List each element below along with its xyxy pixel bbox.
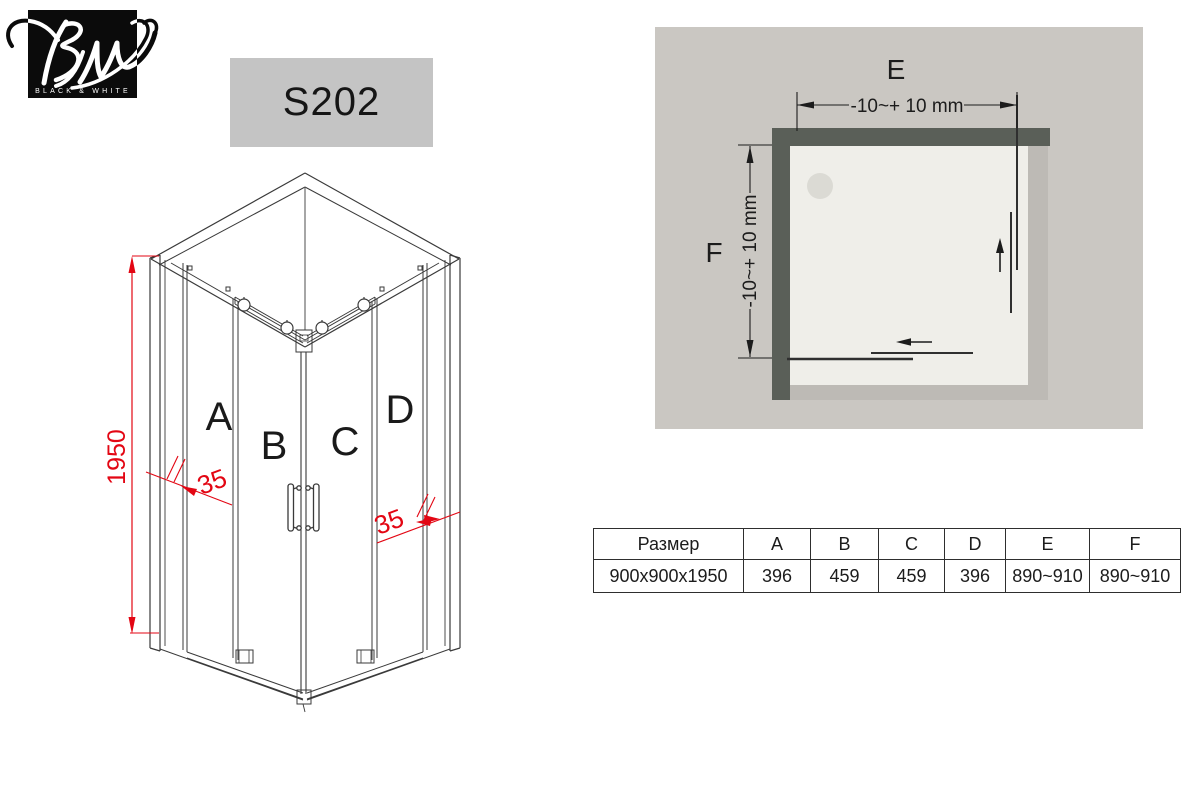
- wall-profile-right: [423, 255, 460, 652]
- roller-wheels: [238, 297, 370, 334]
- panel-label-c: C: [331, 420, 360, 464]
- brand-logo: BLACK & WHITE: [8, 10, 157, 98]
- top-frame: [151, 173, 459, 347]
- drain-icon: [807, 173, 833, 199]
- value-d: 396: [945, 560, 1006, 593]
- value-a: 396: [744, 560, 811, 593]
- corner-post: [296, 330, 312, 694]
- wall-profile-left: [150, 255, 187, 652]
- header-c: C: [879, 529, 945, 560]
- height-dim-text: 1950: [103, 429, 131, 485]
- iso-enclosure-drawing: [150, 173, 460, 712]
- panel-label-a: A: [206, 395, 233, 439]
- header-f: F: [1090, 529, 1181, 560]
- e-tolerance-text: -10~+ 10 mm: [851, 96, 964, 117]
- size-table-header-row: Размер A B C D E F: [594, 529, 1181, 560]
- door-handle-left[interactable]: [288, 484, 301, 531]
- header-d: D: [945, 529, 1006, 560]
- header-size: Размер: [594, 529, 744, 560]
- panel-label-b: B: [261, 424, 288, 468]
- size-table: Размер A B C D E F 900x900x1950 396 459 …: [593, 528, 1181, 593]
- glass-dim-left: 35: [146, 456, 232, 505]
- model-badge: S202: [230, 58, 433, 147]
- f-label: F: [705, 237, 722, 268]
- f-tolerance-text: -10~+ 10 mm: [740, 195, 761, 308]
- header-b: B: [811, 529, 879, 560]
- bottom-rails: [160, 649, 450, 712]
- model-label: S202: [283, 80, 380, 125]
- logo-brand-text: BLACK & WHITE: [35, 88, 131, 95]
- glass-dim-right-text: 35: [370, 503, 407, 541]
- value-f: 890~910: [1090, 560, 1181, 593]
- value-b: 459: [811, 560, 879, 593]
- spec-sheet: BLACK & WHITE: [0, 0, 1200, 800]
- size-table-value-row: 900x900x1950 396 459 459 396 890~910 890…: [594, 560, 1181, 593]
- value-e: 890~910: [1006, 560, 1090, 593]
- door-handle-right[interactable]: [306, 484, 319, 531]
- e-label: E: [887, 54, 906, 85]
- value-size: 900x900x1950: [594, 560, 744, 593]
- glass-dim-left-text: 35: [193, 463, 230, 501]
- panel-labels: A B C D: [206, 388, 415, 468]
- plan-diagram: -10~+ 10 mm E -10~+ 10 mm F: [655, 27, 1143, 429]
- header-a: A: [744, 529, 811, 560]
- door-edges: [233, 299, 377, 660]
- glass-dim-right: 35: [370, 494, 460, 543]
- wall-top: [772, 128, 1050, 146]
- technical-drawing-svg: BLACK & WHITE: [0, 0, 1200, 800]
- value-c: 459: [879, 560, 945, 593]
- panel-label-d: D: [386, 388, 415, 432]
- header-e: E: [1006, 529, 1090, 560]
